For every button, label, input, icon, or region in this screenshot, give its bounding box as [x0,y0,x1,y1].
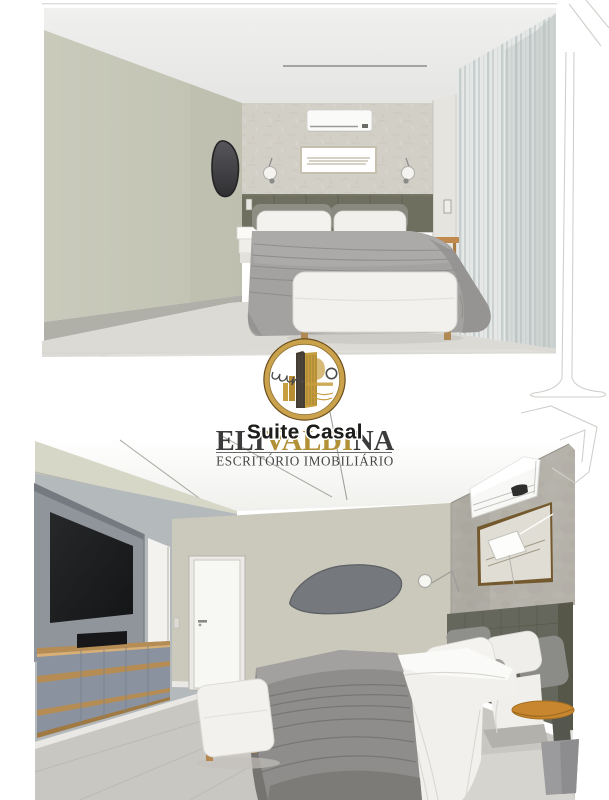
svg-text:Suite Casal: Suite Casal [247,421,363,444]
svg-text:ESCRITÓRIO IMOBILIÁRIO: ESCRITÓRIO IMOBILIÁRIO [216,454,394,469]
